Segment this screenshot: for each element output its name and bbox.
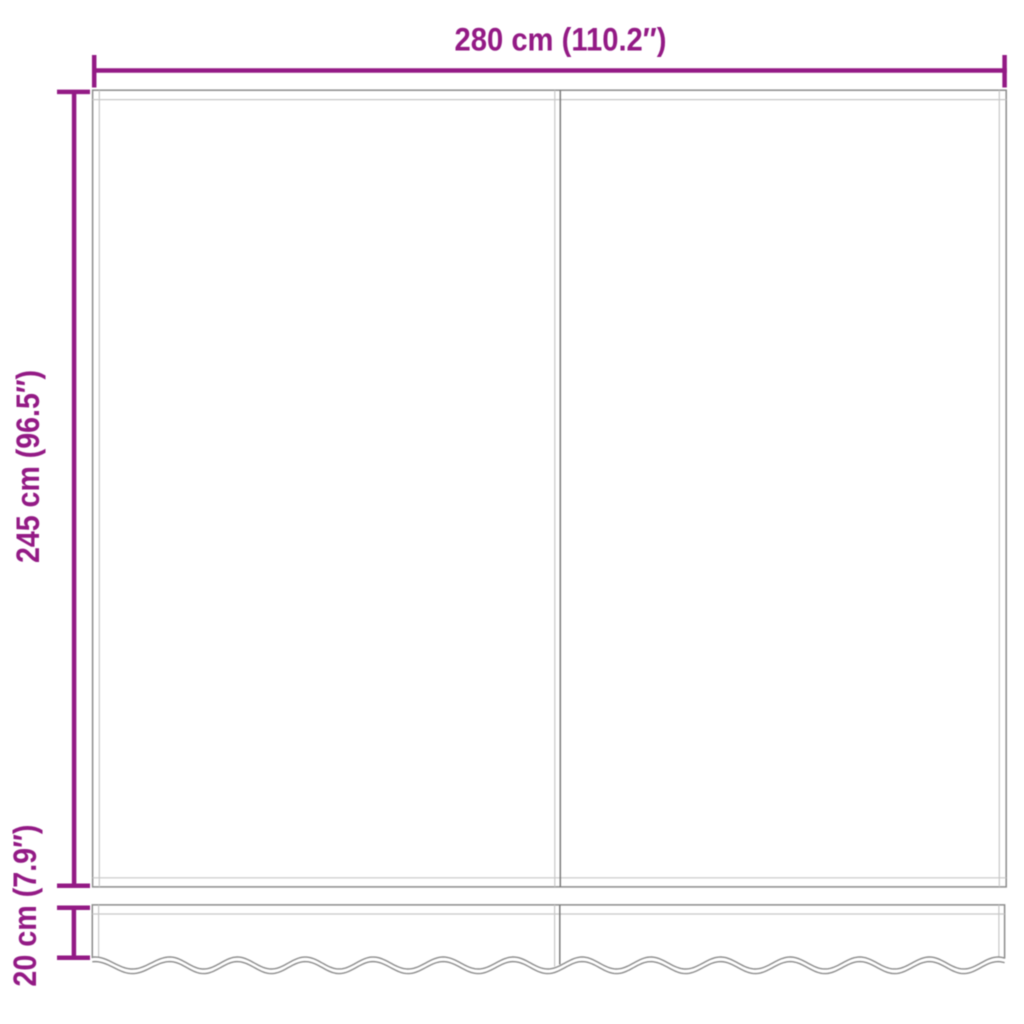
svg-text:280 cm (110.2″): 280 cm (110.2″)	[455, 22, 667, 58]
svg-text:20 cm (7.9″): 20 cm (7.9″)	[7, 825, 43, 987]
svg-text:245 cm (96.5″): 245 cm (96.5″)	[10, 370, 46, 563]
